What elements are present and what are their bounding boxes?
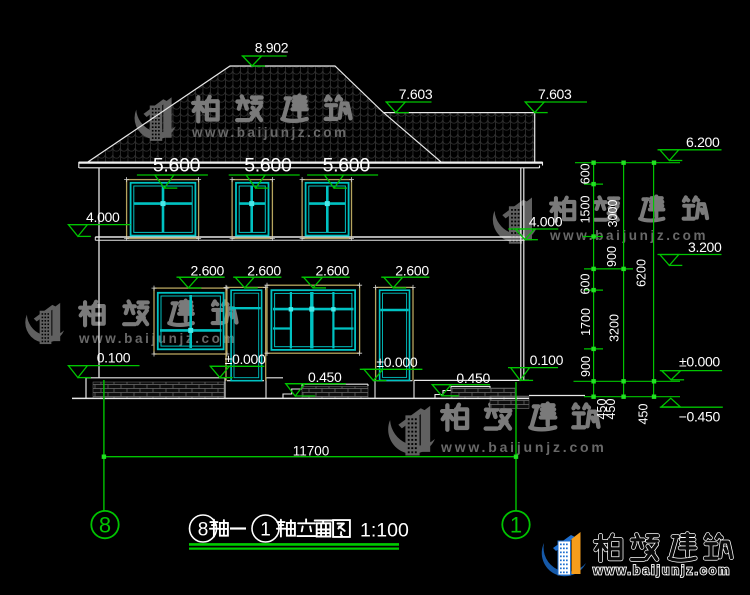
svg-text:−0.450: −0.450: [679, 409, 721, 425]
svg-text:www.baijunjz.com: www.baijunjz.com: [440, 439, 607, 455]
svg-text:600: 600: [579, 163, 593, 184]
svg-text:600: 600: [579, 274, 593, 295]
svg-text:2.600: 2.600: [316, 262, 350, 278]
svg-text:1700: 1700: [579, 308, 593, 336]
svg-text:3200: 3200: [608, 314, 622, 342]
svg-text:1: 1: [260, 520, 271, 541]
svg-text:0.100: 0.100: [530, 352, 564, 368]
svg-text:0.450: 0.450: [456, 370, 490, 386]
svg-text:7.603: 7.603: [399, 86, 433, 102]
svg-text:4.000: 4.000: [529, 213, 563, 229]
svg-text:8: 8: [198, 520, 209, 541]
svg-text:1: 1: [510, 513, 522, 538]
svg-text:6200: 6200: [635, 259, 649, 287]
svg-text:5.600: 5.600: [244, 154, 292, 176]
svg-text:900: 900: [605, 246, 619, 267]
svg-text:7.603: 7.603: [538, 86, 572, 102]
svg-text:www.baijunjz.com: www.baijunjz.com: [592, 564, 731, 578]
svg-text:8: 8: [99, 513, 111, 538]
svg-text:2.600: 2.600: [247, 262, 281, 278]
svg-text:11700: 11700: [293, 444, 330, 459]
svg-text:0.100: 0.100: [97, 350, 131, 366]
svg-text:5.600: 5.600: [153, 154, 201, 176]
svg-text:±0.000: ±0.000: [225, 351, 266, 367]
svg-text:1:100: 1:100: [360, 520, 409, 542]
svg-text:0.450: 0.450: [308, 369, 342, 385]
svg-text:2.600: 2.600: [395, 262, 429, 278]
svg-text:5.600: 5.600: [323, 154, 371, 176]
svg-text:8.902: 8.902: [255, 40, 289, 56]
svg-text:www.baijunjz.com: www.baijunjz.com: [191, 125, 349, 140]
svg-text:6.200: 6.200: [686, 134, 720, 150]
svg-text:±0.000: ±0.000: [679, 353, 720, 369]
svg-text:1500: 1500: [579, 196, 593, 224]
svg-text:±0.000: ±0.000: [376, 354, 417, 370]
svg-text:2.600: 2.600: [191, 262, 225, 278]
svg-text:4.000: 4.000: [86, 209, 120, 225]
svg-text:900: 900: [579, 356, 593, 377]
svg-text:450: 450: [604, 399, 618, 420]
svg-text:www.baijunjz.com: www.baijunjz.com: [549, 228, 708, 243]
svg-text:3.200: 3.200: [688, 239, 722, 255]
svg-text:450: 450: [637, 404, 651, 425]
svg-text:3000: 3000: [606, 200, 620, 228]
